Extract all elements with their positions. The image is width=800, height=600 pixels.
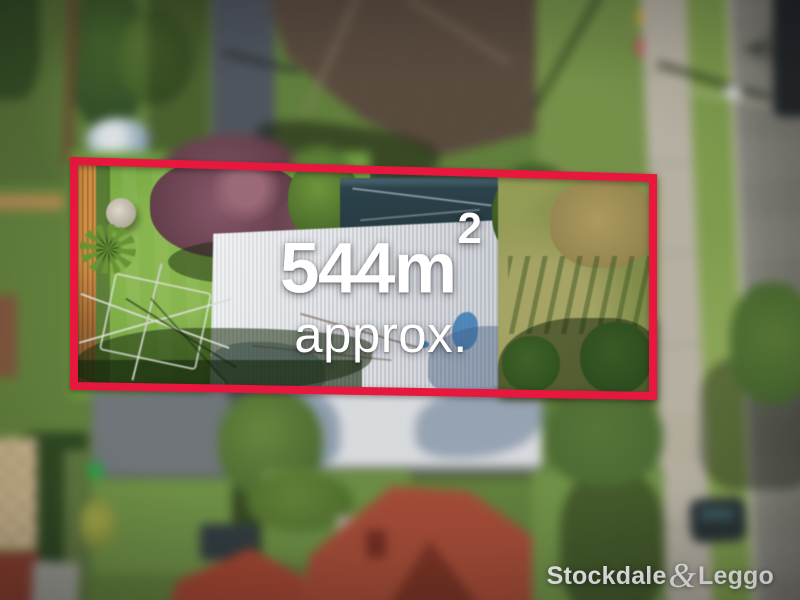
area-value-line: 544m2 [186,232,576,305]
area-qualifier: approx. [186,309,576,360]
area-value: 544m [280,230,456,309]
watermark-suffix: Leggo [698,562,774,590]
land-area-label: 544m2 approx. [186,232,576,360]
watermark-name: Stockdale [547,562,667,590]
area-exponent: 2 [458,204,482,253]
aerial-property-photo: 544m2 approx. Stockdale&Leggo [0,0,800,600]
agency-watermark: Stockdale&Leggo [547,553,774,593]
watermark-ampersand: & [669,556,696,595]
